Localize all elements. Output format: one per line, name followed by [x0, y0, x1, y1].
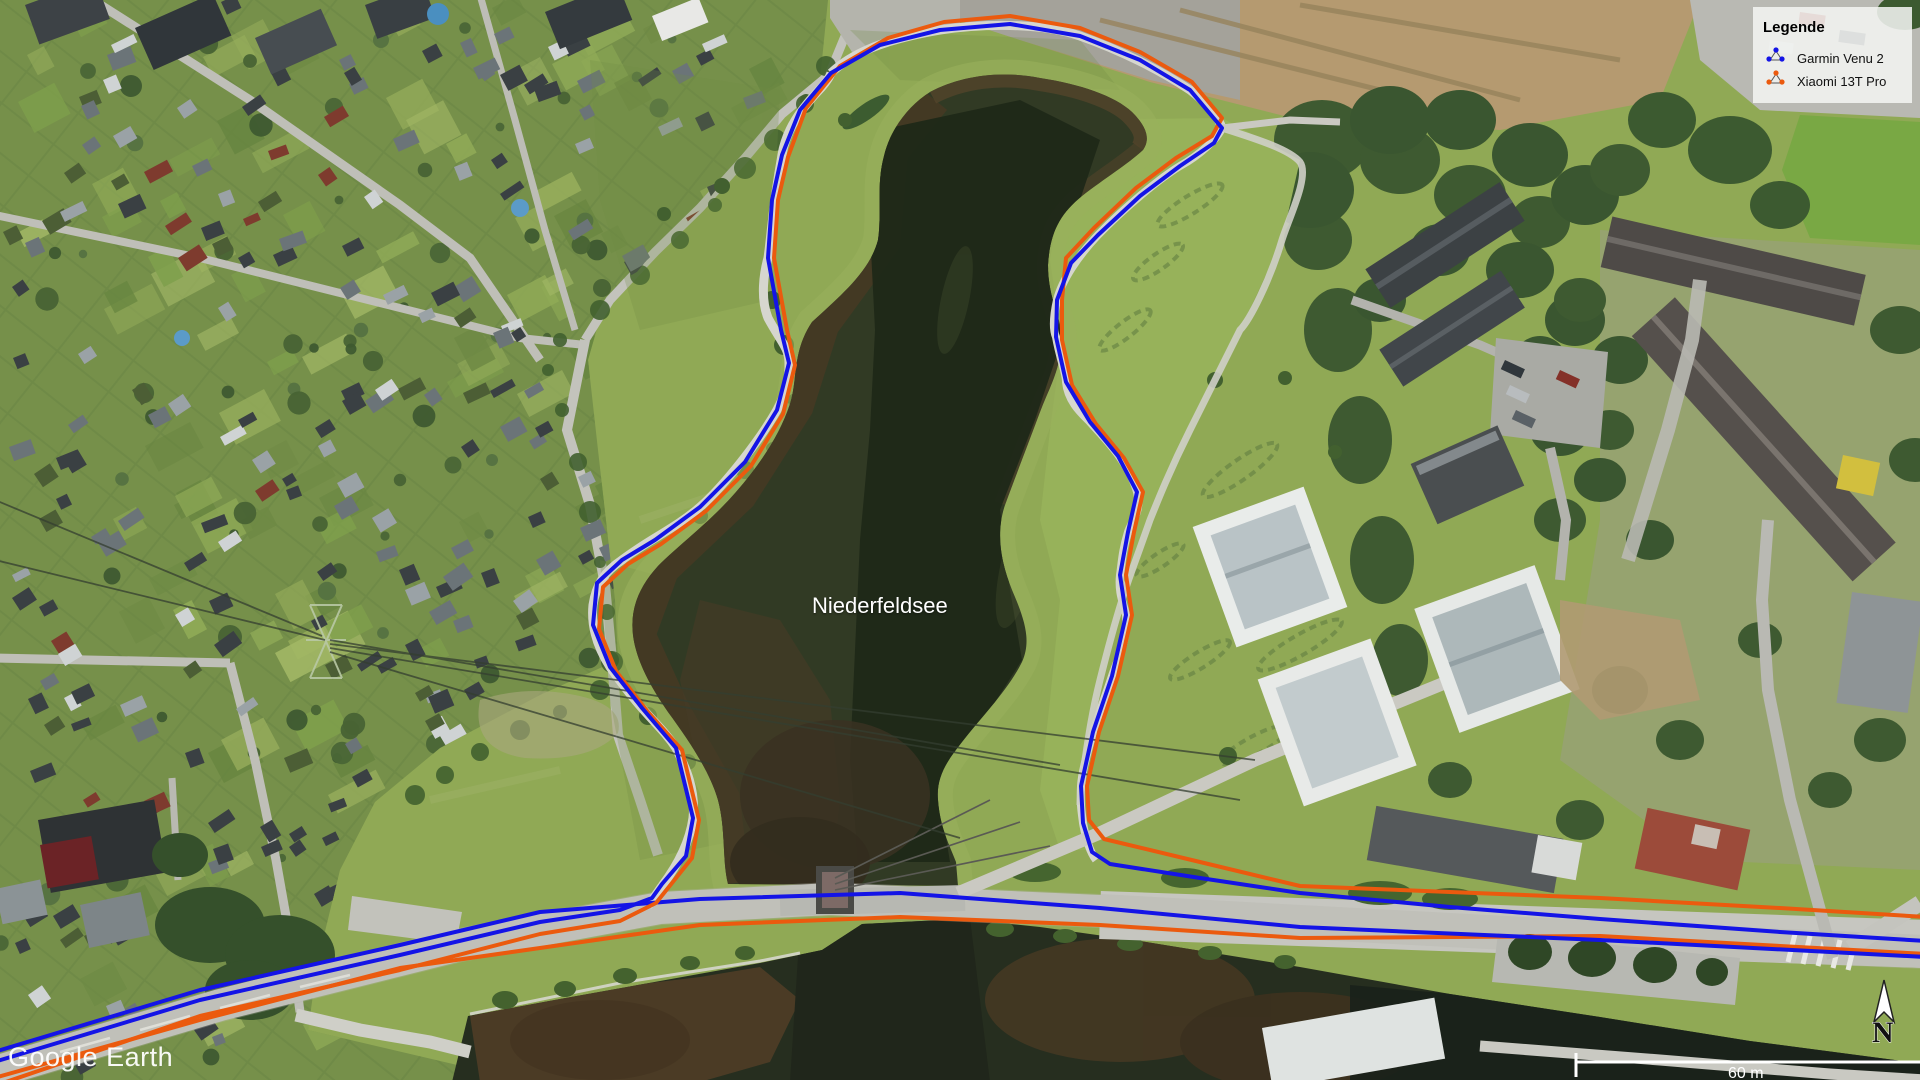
- svg-text:Xiaomi 13T Pro: Xiaomi 13T Pro: [1797, 74, 1886, 89]
- svg-text:Niederfeldsee: Niederfeldsee: [812, 593, 948, 618]
- svg-text:60 m: 60 m: [1728, 1065, 1764, 1080]
- svg-text:Legende: Legende: [1763, 19, 1825, 36]
- svg-text:N: N: [1872, 1016, 1894, 1049]
- svg-text:Google Earth: Google Earth: [8, 1042, 173, 1072]
- svg-text:Garmin Venu 2: Garmin Venu 2: [1797, 51, 1884, 66]
